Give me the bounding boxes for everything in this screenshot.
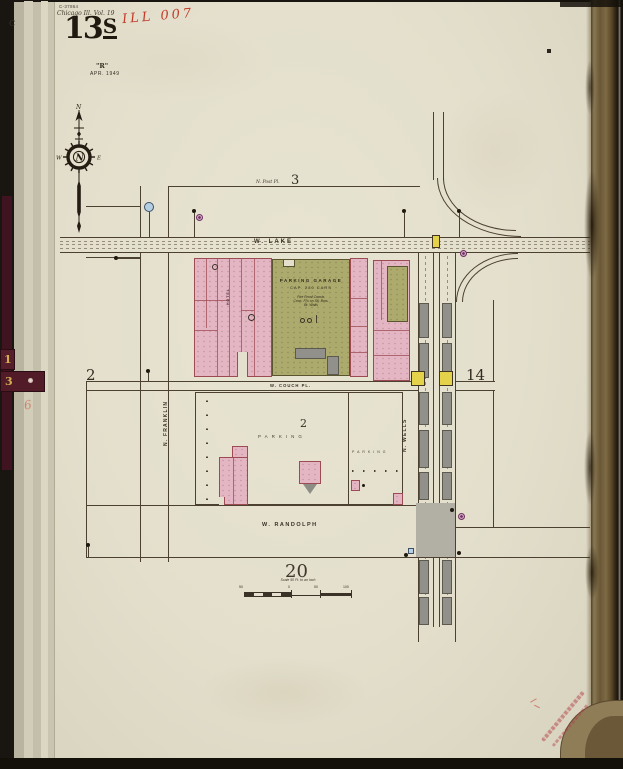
couch-street-south-line [86, 390, 418, 391]
compass-rose: N N W E [54, 100, 104, 238]
revision-letter: "R" [96, 62, 108, 70]
water-tank-circle [144, 202, 154, 212]
hydrant-circle [458, 513, 465, 520]
compass-monogram: N [75, 153, 85, 163]
building-notch [219, 497, 225, 505]
wells-rail-line [439, 252, 440, 627]
binding-burn-mark [585, 545, 599, 600]
building-block2-b [299, 461, 321, 484]
water-tank-square [408, 548, 414, 554]
lamp-post-dot [457, 551, 461, 555]
courtyard-notch [237, 352, 248, 377]
sheet-number-prefix: 13 [64, 14, 102, 44]
parking-lot-label: PARKING [258, 434, 306, 439]
map-sheet [54, 2, 591, 758]
garage-capacity: CAP. 280 CARS [274, 285, 348, 290]
party-wall [373, 355, 410, 356]
randolph-street-label: W. RANDOLPH [262, 522, 318, 528]
elevated-crossing-randolph [416, 503, 455, 557]
wells-rail-line [433, 252, 434, 627]
elevated-platform [419, 430, 429, 468]
party-wall [381, 260, 382, 320]
lake-track-dashes [60, 244, 590, 245]
elevated-platform [442, 430, 452, 468]
scale-bar: Scale 50 Ft. to an Inch 50 0 50 100 [238, 578, 358, 602]
garage-shed [295, 348, 326, 359]
block-2-division [348, 392, 349, 505]
party-wall [241, 258, 242, 352]
compass-west-label: W [56, 156, 63, 162]
scale-tick-label: 50 [314, 585, 318, 589]
elevated-platform [419, 472, 429, 500]
wells-street-east-line [455, 252, 456, 642]
elevated-platform [419, 597, 429, 625]
wells-street-label: N. WELLS [402, 419, 408, 453]
symbol-stem [148, 373, 149, 381]
party-wall [206, 258, 207, 328]
sheet-number-suffix: S [103, 16, 117, 39]
couch-street-north-line [86, 381, 418, 382]
symbol-stem [459, 213, 460, 237]
compass-east-label: E [96, 156, 101, 162]
party-wall [217, 258, 218, 377]
elevated-platform [419, 560, 429, 594]
skylight-circle [212, 264, 218, 270]
scale-tick-label: 0 [288, 585, 290, 589]
scale-segments [244, 592, 291, 597]
block-west-line [86, 381, 87, 557]
wells-north-stub [443, 112, 444, 180]
garage-shed [327, 356, 339, 375]
parking-lot-label: PARKING [352, 450, 389, 454]
garage-text: PARKING GARAGE CAP. 280 CARS Fire Proof … [274, 278, 348, 307]
catalog-number: C-37864 [59, 4, 78, 9]
binder-tab-3: 3 [0, 371, 45, 392]
skylight-circle [248, 314, 255, 321]
scale-tick-label: 50 [239, 585, 243, 589]
bottom-shadow [0, 758, 623, 769]
party-wall [350, 298, 368, 299]
block-number-center: 2 [300, 417, 307, 430]
symbol-stem [404, 213, 405, 237]
binding-top-shadow [560, 0, 623, 7]
scale-tick [351, 590, 352, 598]
sheet-ref-west: 2 [86, 366, 96, 384]
lamp-post-dot [450, 508, 454, 512]
block-corner-line [86, 206, 140, 207]
post-place-label: N. Post Pl. [256, 180, 280, 185]
hydrant-circle [196, 214, 203, 221]
lamp-post-dot [404, 553, 408, 557]
scale-tick [291, 590, 292, 598]
elevated-platform [419, 303, 429, 338]
party-wall [350, 352, 368, 353]
garage-name: PARKING GARAGE [274, 278, 348, 283]
binding-burn-mark [585, 60, 595, 115]
compass-north-label: N [75, 104, 82, 111]
scanned-sanborn-map-page: C C-37864 Chicago Ill. Vol. 19 ILL 007 1… [0, 0, 623, 769]
franklin-street-west-line [140, 252, 141, 562]
station-house [411, 371, 425, 386]
franklin-street-label: N. FRANKLIN [163, 401, 169, 446]
binder-tab-1: 1 [0, 349, 15, 370]
lake-track-dashes [60, 241, 590, 242]
scale-wedge [320, 593, 352, 596]
elevated-platform [442, 472, 452, 500]
compass-needle-blade [77, 180, 81, 218]
binder-tab-3-label: 3 [1, 375, 13, 388]
lake-street-label: W. LAKE [254, 239, 293, 245]
party-wall [229, 258, 230, 377]
couch-street-label: W. COUCH PL. [270, 383, 311, 388]
edge-letter: C [9, 19, 15, 28]
binding-burn-mark [584, 170, 600, 280]
scale-tick-label: 100 [343, 585, 349, 589]
east-block-line [493, 390, 494, 527]
signal-tower [432, 235, 440, 248]
tab-edge-column [2, 196, 12, 470]
elevated-platform [419, 392, 429, 425]
hotel-label: HOTEL [226, 288, 230, 305]
symbol-stem [149, 212, 150, 237]
party-wall [194, 300, 230, 301]
sheet-number: 13 S [64, 14, 117, 44]
building-block2-c [351, 480, 360, 491]
elevated-platform [442, 560, 452, 594]
randolph-street-south-line [86, 557, 590, 558]
scale-caption: Scale 50 Ft. to an Inch [252, 578, 344, 582]
pencil-mark: 6 [23, 397, 33, 412]
franklin-street-west-line [140, 186, 141, 237]
scale-tick [320, 590, 321, 598]
garage-mark [316, 315, 317, 323]
randolph-street-north-line-east [455, 527, 590, 528]
elevated-platform [442, 597, 452, 625]
binding-burn-mark [584, 430, 596, 505]
couch-street-south-line-east [455, 390, 495, 391]
party-wall [241, 310, 254, 311]
lot-tick-marks [206, 400, 208, 500]
symbol-stem [194, 213, 195, 237]
sheet-ref-north: 3 [291, 173, 299, 188]
building-green-east-strip [387, 266, 408, 322]
lot-tick-marks [352, 470, 398, 472]
building-pink-middle [350, 258, 368, 377]
wells-north-stub [433, 112, 434, 180]
garage-notch [283, 259, 295, 267]
party-wall [350, 326, 368, 327]
randolph-street-north-line [86, 505, 418, 506]
elevated-platform [442, 303, 452, 338]
ink-fleck [547, 49, 551, 53]
elevated-platform [442, 392, 452, 425]
hydrant-circle [460, 250, 467, 257]
symbol-stem [118, 258, 140, 259]
station-house [439, 371, 453, 386]
franklin-street-east-line [168, 186, 169, 237]
elevator-circle [307, 318, 312, 323]
elevator-circle [300, 318, 305, 323]
binding-edge [586, 0, 623, 769]
garage-note: Br. Walls [274, 303, 348, 307]
party-wall [373, 330, 410, 331]
party-wall [233, 457, 234, 505]
lake-street-north-line [60, 237, 590, 238]
tab-wear-fleck [28, 378, 33, 383]
east-block-line [493, 300, 494, 381]
lake-track-dashes [60, 248, 590, 249]
revision-date: APR. 1949 [90, 71, 120, 77]
sheet-ref-east: 14 [466, 366, 485, 384]
building-block2-corner [393, 493, 403, 505]
symbol-stem [88, 547, 89, 557]
binder-tab-1-label: 1 [1, 353, 12, 366]
party-wall [194, 330, 217, 331]
post-dot [362, 484, 365, 487]
